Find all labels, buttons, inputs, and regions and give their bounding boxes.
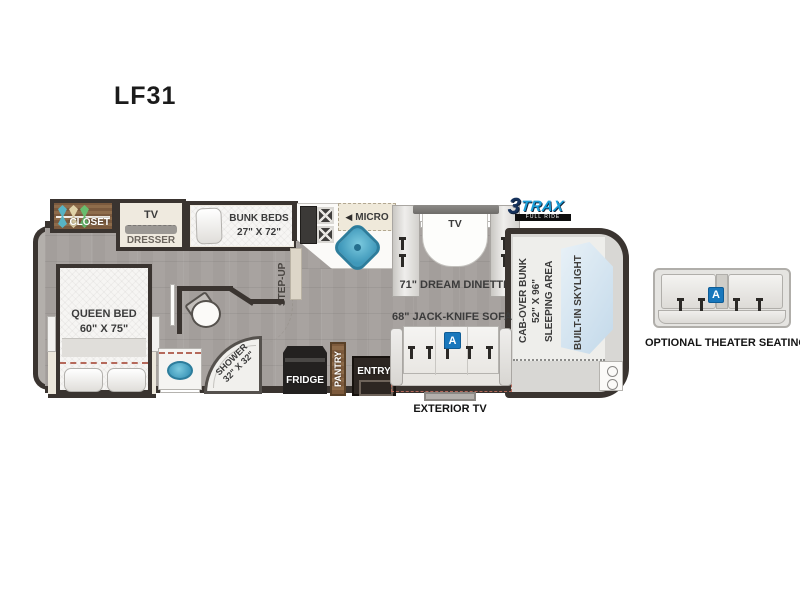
burner-icon <box>317 226 334 243</box>
drain <box>353 243 363 253</box>
fridge: FRIDGE <box>283 346 327 394</box>
cup-holder-icon <box>607 379 618 390</box>
arrow-left-icon: ◀ <box>345 212 352 223</box>
seatbelt-icon <box>446 348 449 359</box>
dinette-table <box>422 205 488 267</box>
floorplan-page: LF31 CLOSET TV DRESSER BUNK BEDS 27" X 7… <box>0 0 800 600</box>
sofa-armrest <box>390 328 403 386</box>
closet: CLOSET <box>50 199 116 233</box>
vanity <box>158 348 202 390</box>
option-a-badge: A <box>708 287 724 303</box>
seatbelt-icon <box>401 239 404 250</box>
exterior-tv-label: EXTERIOR TV <box>390 403 510 415</box>
queen-bed-label-2: 60" X 75" <box>60 323 148 335</box>
sofa-label: 68" JACK-KNIFE SOFA <box>392 311 512 323</box>
slide-line <box>60 362 148 364</box>
queen-bed-label-1: QUEEN BED <box>60 308 148 320</box>
toilet-icon <box>191 300 221 328</box>
pantry-label: PANTRY <box>333 351 343 387</box>
step-outline <box>359 380 393 396</box>
closet-label: CLOSET <box>69 217 110 228</box>
step-up-label: STEP-UP <box>277 250 288 306</box>
seatbelt-icon <box>488 348 491 359</box>
sofa-armrest <box>499 328 512 386</box>
cup-holder-icon <box>607 366 618 377</box>
micro-label: MICRO <box>355 212 388 223</box>
burner-icon <box>317 207 334 224</box>
kitchen-wall <box>292 203 297 241</box>
seatbelt-icon <box>428 348 431 359</box>
bath-wall <box>177 286 233 291</box>
pocket-door <box>170 284 175 326</box>
slide-line <box>159 352 201 354</box>
logo-tagline: FULL RIDE SYSTEM <box>515 214 571 221</box>
seatbelt-icon <box>410 348 413 359</box>
option-a-badge: A <box>444 332 461 349</box>
entry-label: ENTRY <box>354 366 394 377</box>
skylight <box>561 242 613 354</box>
queen-bed: QUEEN BED 60" X 75" <box>56 264 152 394</box>
nightstand <box>47 316 56 352</box>
logo-text: TRAX <box>520 198 565 215</box>
cab-over-bunk-label: CAB-OVER BUNK 52" X 96" SLEEPING AREA <box>517 246 556 356</box>
stove <box>300 206 317 244</box>
vanity-sink-icon <box>167 361 193 380</box>
bath-wall <box>250 299 284 304</box>
bedroom-tv-label: TV <box>120 209 182 221</box>
seatbelt-icon <box>700 300 703 311</box>
seatbelt-icon <box>468 348 471 359</box>
seatbelt-icon <box>735 300 738 311</box>
dinette-tv <box>413 205 499 214</box>
cab-section: CAB-OVER BUNK 52" X 96" SLEEPING AREA BU… <box>505 228 629 398</box>
pantry: PANTRY <box>330 342 346 396</box>
bath-wall <box>177 286 182 334</box>
cushion-divider <box>435 327 436 375</box>
dresser-label: DRESSER <box>120 235 182 246</box>
dinette-tv-label: TV <box>422 218 488 230</box>
pillow <box>195 208 222 245</box>
skylight-label: BUILT-IN SKYLIGHT <box>573 254 584 350</box>
nightstand <box>151 316 160 352</box>
theater-seating-label: OPTIONAL THEATER SEATING <box>645 337 797 349</box>
pillow <box>107 368 146 392</box>
page-title: LF31 <box>114 82 176 111</box>
cup-holders <box>599 361 623 391</box>
blanket-fold <box>62 338 146 357</box>
fridge-label: FRIDGE <box>283 375 327 386</box>
bunk-label-2: 27" X 72" <box>226 227 292 238</box>
bunk-label-1: BUNK BEDS <box>226 213 292 224</box>
bunk-beds: BUNK BEDS 27" X 72" <box>186 201 298 251</box>
microwave-overhead: ◀ MICRO <box>338 203 396 231</box>
step <box>290 248 302 300</box>
dinette-label: 71" DREAM DINETTE <box>395 279 515 291</box>
dresser-cabinet: TV DRESSER <box>116 199 186 251</box>
seatbelt-icon <box>679 300 682 311</box>
pillow <box>64 368 103 392</box>
seatbelt-icon <box>758 300 761 311</box>
seatbelt-icon <box>401 256 404 267</box>
fridge-line <box>285 358 325 362</box>
3trax-logo: 3 TRAX FULL RIDE SYSTEM <box>508 196 576 224</box>
dresser-top <box>125 225 177 234</box>
exterior-tv-bracket <box>424 392 476 401</box>
theater-seating: A <box>653 268 791 328</box>
theater-footrest <box>658 310 786 324</box>
